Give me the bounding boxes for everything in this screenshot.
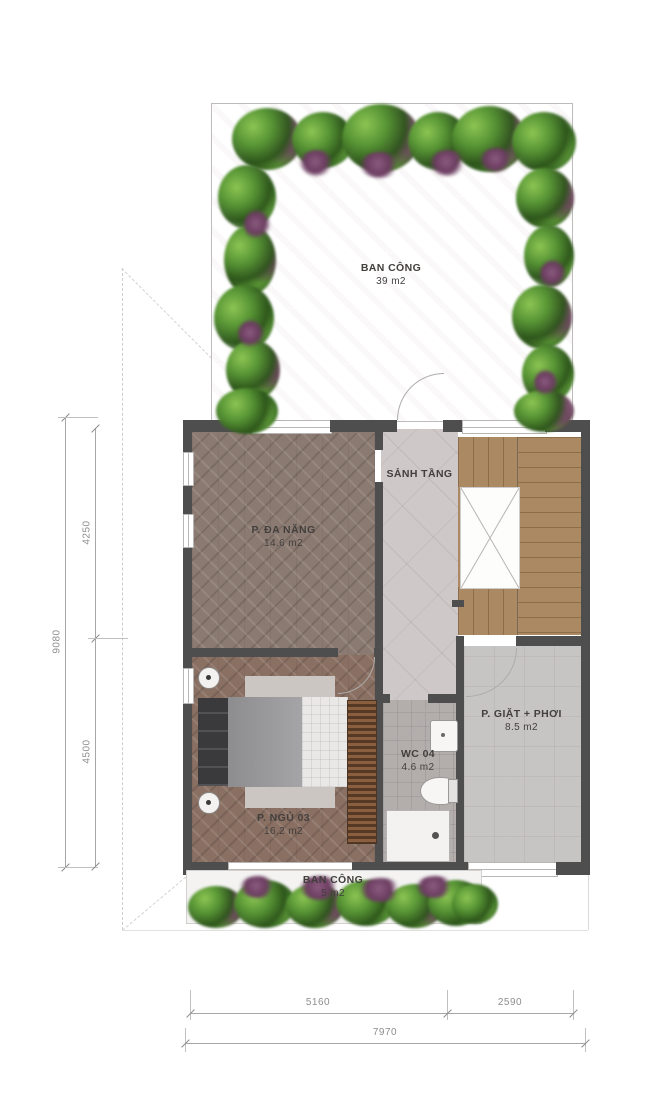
wall-segment xyxy=(375,420,383,450)
dim-extension xyxy=(185,1028,186,1052)
ceiling-light-dot xyxy=(206,675,211,680)
sink-drain xyxy=(441,733,445,737)
room-name: P. NGỦ 03 xyxy=(257,812,310,825)
ceiling-light-dot xyxy=(206,800,211,805)
plant-blossom xyxy=(534,370,558,396)
dim-line-left-segments xyxy=(95,428,96,866)
dim-label-left-total: 9080 xyxy=(52,612,63,672)
bed-blanket xyxy=(302,697,348,787)
plant-blossom xyxy=(360,152,400,178)
wall-segment xyxy=(443,420,462,432)
stair-nib xyxy=(452,600,464,607)
wall-segment xyxy=(374,648,383,657)
room-label-balcony-top: BAN CÔNG 39 m2 xyxy=(211,262,571,288)
dim-extension xyxy=(447,990,448,1020)
dim-line-left-total xyxy=(65,417,66,868)
dim-line-bottom-segments xyxy=(190,1013,573,1014)
window xyxy=(183,452,194,486)
wall-segment xyxy=(456,636,464,875)
dim-label-left-top: 4250 xyxy=(82,503,93,563)
dim-extension xyxy=(88,638,128,639)
dim-extension xyxy=(58,417,98,418)
plant-bush xyxy=(216,388,278,434)
room-label-hall: SẢNH TẦNG xyxy=(381,468,458,481)
plant-bush xyxy=(512,285,572,349)
plant-blossom xyxy=(238,320,264,348)
room-label-wc: WC 04 4.6 m2 xyxy=(383,748,453,774)
room-label-bedroom: P. NGỦ 03 16.2 m2 xyxy=(192,812,375,838)
room-name: P. GIẶT + PHƠI xyxy=(481,708,562,721)
dim-extension xyxy=(190,990,191,1020)
dim-label-bottom-total: 7970 xyxy=(355,1027,415,1038)
shower-drain xyxy=(432,832,439,839)
toilet-tank xyxy=(448,779,458,803)
stair-void xyxy=(460,487,520,589)
dim-label-bottom-left: 5160 xyxy=(288,997,348,1008)
room-name: BAN CÔNG xyxy=(361,262,421,275)
shower-area xyxy=(386,810,450,862)
plant-blossom xyxy=(430,150,466,176)
plant-bush xyxy=(516,168,574,228)
room-area: 39 m2 xyxy=(376,275,406,288)
roof-outline-bottom xyxy=(122,930,588,931)
stair-flight-bottom xyxy=(458,587,518,635)
roof-outline-left xyxy=(122,268,124,930)
wall-segment xyxy=(183,648,338,657)
wall-segment xyxy=(428,694,458,703)
room-area: 5 m2 xyxy=(321,887,345,900)
wall-segment xyxy=(383,694,390,703)
roof-outline-diagonal-top xyxy=(121,268,212,359)
room-name: P. ĐA NĂNG xyxy=(251,524,315,537)
room-label-multi: P. ĐA NĂNG 14.6 m2 xyxy=(192,524,375,550)
room-label-balcony-bottom: BAN CÔNG 5 m2 xyxy=(186,874,480,900)
bed-headboard xyxy=(198,698,228,786)
plant-blossom xyxy=(480,148,514,172)
dim-extension xyxy=(573,990,574,1020)
room-name: SẢNH TẦNG xyxy=(386,468,452,481)
wall-segment xyxy=(330,420,397,432)
room-area: 4.6 m2 xyxy=(402,761,435,774)
wall-segment xyxy=(516,636,590,646)
dim-label-left-bottom: 4500 xyxy=(82,722,93,782)
dim-extension xyxy=(585,1028,586,1052)
room-name: BAN CÔNG xyxy=(303,874,363,887)
plant-bush xyxy=(514,390,574,432)
stair-flight-right xyxy=(518,437,581,635)
plant-blossom xyxy=(300,150,334,176)
wall-segment xyxy=(556,862,590,875)
room-area: 8.5 m2 xyxy=(505,721,538,734)
window xyxy=(183,668,194,704)
stair-flight-top xyxy=(458,437,518,487)
room-label-laundry: P. GIẶT + PHƠI 8.5 m2 xyxy=(462,708,581,734)
plant-bush xyxy=(512,112,576,172)
wall-segment xyxy=(375,482,383,655)
dim-line-bottom-total xyxy=(185,1043,585,1044)
plant-blossom xyxy=(244,210,270,240)
bed-mattress xyxy=(228,697,302,787)
room-name: WC 04 xyxy=(401,748,435,761)
wall-segment xyxy=(581,420,590,875)
room-area: 16.2 m2 xyxy=(264,825,303,838)
roof-outline-right xyxy=(588,875,589,930)
dim-label-bottom-right: 2590 xyxy=(480,997,540,1008)
room-area: 14.6 m2 xyxy=(264,537,303,550)
floor-plan: BAN CÔNG 39 m2 xyxy=(0,0,672,1100)
